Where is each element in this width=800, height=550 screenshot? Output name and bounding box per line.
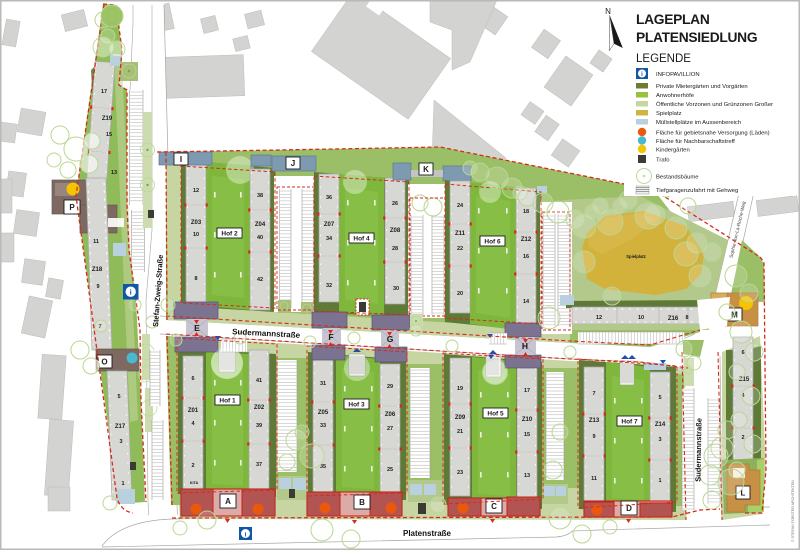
svg-text:41: 41: [256, 378, 262, 384]
svg-text:37: 37: [256, 462, 262, 468]
svg-text:24: 24: [457, 203, 464, 209]
svg-text:Z05: Z05: [318, 410, 329, 416]
svg-text:Hof 2: Hof 2: [221, 230, 238, 237]
svg-text:12: 12: [596, 315, 602, 321]
svg-text:Z13: Z13: [589, 418, 600, 424]
svg-text:15: 15: [106, 132, 112, 138]
svg-text:Hof 3: Hof 3: [348, 401, 365, 408]
svg-text:33: 33: [320, 423, 326, 429]
svg-text:3: 3: [658, 437, 661, 443]
svg-text:Z04: Z04: [255, 222, 266, 228]
svg-text:26: 26: [392, 201, 398, 207]
svg-text:2: 2: [741, 435, 744, 441]
svg-text:Z02: Z02: [254, 405, 265, 411]
svg-text:7: 7: [592, 391, 595, 397]
svg-text:16: 16: [523, 254, 529, 260]
svg-text:KITA: KITA: [190, 481, 199, 485]
svg-text:Z17: Z17: [115, 424, 126, 430]
svg-text:29: 29: [387, 384, 393, 390]
svg-text:8: 8: [194, 276, 197, 282]
svg-text:9: 9: [96, 284, 99, 290]
svg-text:Platenstraße: Platenstraße: [403, 529, 452, 538]
svg-text:Kindergärten: Kindergärten: [656, 147, 690, 153]
svg-text:Hof 6: Hof 6: [484, 238, 501, 245]
svg-text:11: 11: [591, 476, 597, 482]
svg-text:34: 34: [326, 236, 333, 242]
svg-text:B: B: [359, 498, 365, 507]
svg-text:C: C: [491, 502, 497, 511]
svg-text:1: 1: [121, 481, 124, 487]
svg-text:15: 15: [524, 432, 530, 438]
svg-text:12: 12: [193, 188, 199, 194]
svg-text:F: F: [328, 332, 333, 342]
svg-text:28: 28: [392, 246, 398, 252]
svg-text:2: 2: [191, 463, 194, 469]
svg-text:Öffentliche Vorzonen und Grünz: Öffentliche Vorzonen und Grünzonen Große…: [656, 101, 773, 108]
svg-text:i: i: [130, 288, 132, 297]
svg-text:Z14: Z14: [655, 422, 666, 428]
svg-text:Private Mietergärten und Vorgä: Private Mietergärten und Vorgärten: [656, 84, 748, 90]
svg-text:27: 27: [387, 426, 393, 432]
svg-text:Z11: Z11: [455, 231, 466, 237]
svg-text:1: 1: [658, 478, 661, 484]
svg-text:Fläche für Nachbarschaftstreff: Fläche für Nachbarschaftstreff: [656, 139, 735, 145]
svg-text:I: I: [180, 155, 182, 164]
svg-text:LAGEPLAN: LAGEPLAN: [636, 12, 710, 27]
svg-text:40: 40: [257, 235, 263, 241]
svg-text:19: 19: [457, 386, 463, 392]
svg-text:10: 10: [638, 315, 644, 321]
svg-text:Anwohnerhöfe: Anwohnerhöfe: [656, 93, 695, 99]
svg-text:P: P: [69, 203, 75, 212]
svg-text:H: H: [522, 341, 528, 351]
svg-text:14: 14: [523, 299, 530, 305]
svg-text:13: 13: [524, 473, 530, 479]
svg-text:3: 3: [119, 439, 122, 445]
svg-text:J: J: [291, 159, 295, 168]
svg-text:20: 20: [457, 291, 463, 297]
svg-text:Hof 5: Hof 5: [487, 410, 504, 417]
svg-text:Hof 1: Hof 1: [219, 397, 236, 404]
svg-text:i: i: [245, 531, 247, 538]
svg-text:Z16: Z16: [668, 316, 679, 322]
svg-text:Hof 4: Hof 4: [353, 235, 370, 242]
svg-text:17: 17: [101, 89, 107, 95]
svg-text:25: 25: [387, 467, 393, 473]
svg-text:11: 11: [93, 239, 99, 245]
svg-text:O: O: [101, 357, 107, 366]
svg-text:Z12: Z12: [521, 237, 532, 243]
svg-text:35: 35: [320, 464, 326, 470]
svg-text:30: 30: [393, 286, 399, 292]
svg-text:Sudermannstraße: Sudermannstraße: [693, 418, 703, 482]
svg-text:31: 31: [320, 381, 326, 387]
svg-text:Z01: Z01: [188, 408, 199, 414]
svg-text:6: 6: [741, 350, 744, 356]
svg-text:INFOPAVILLION: INFOPAVILLION: [656, 72, 700, 78]
svg-text:22: 22: [457, 246, 463, 252]
svg-text:6: 6: [191, 376, 194, 382]
svg-text:10: 10: [193, 232, 199, 238]
svg-text:17: 17: [524, 388, 530, 394]
svg-text:8: 8: [685, 315, 688, 321]
svg-text:PLATENSIEDLUNG: PLATENSIEDLUNG: [636, 30, 757, 45]
svg-text:38: 38: [257, 193, 263, 199]
svg-text:N: N: [605, 7, 611, 16]
svg-text:Hof 7: Hof 7: [621, 418, 638, 425]
svg-text:Trafo: Trafo: [656, 158, 670, 164]
svg-text:13: 13: [111, 170, 117, 176]
svg-text:K: K: [423, 165, 429, 174]
svg-text:18: 18: [523, 209, 529, 215]
svg-text:9: 9: [592, 434, 595, 440]
svg-text:Bestandsbäume: Bestandsbäume: [656, 175, 699, 181]
svg-text:Z08: Z08: [390, 228, 401, 234]
svg-text:Z09: Z09: [455, 415, 466, 421]
svg-text:Z07: Z07: [324, 222, 335, 228]
svg-text:G: G: [387, 334, 394, 344]
svg-text:36: 36: [326, 195, 332, 201]
svg-text:32: 32: [326, 283, 332, 289]
svg-text:Z03: Z03: [191, 220, 202, 226]
svg-text:Z18: Z18: [92, 267, 103, 273]
svg-text:Spielplatz: Spielplatz: [656, 111, 682, 117]
svg-text:Z10: Z10: [522, 417, 533, 423]
svg-text:© STEFAN FORSTER ARCHITEKTEN: © STEFAN FORSTER ARCHITEKTEN: [791, 480, 795, 542]
svg-text:Fläche für gebietsnahe Versorg: Fläche für gebietsnahe Versorgung (Läden…: [656, 130, 770, 136]
svg-text:LEGENDE: LEGENDE: [636, 53, 691, 65]
svg-text:5: 5: [117, 394, 120, 400]
svg-text:E: E: [194, 323, 200, 333]
svg-text:42: 42: [257, 277, 263, 283]
svg-text:Z19: Z19: [102, 116, 113, 122]
svg-text:21: 21: [457, 429, 463, 435]
svg-text:Müllstellplätze im Aussenberei: Müllstellplätze im Aussenbereich: [656, 120, 741, 126]
svg-text:23: 23: [457, 470, 463, 476]
svg-text:Spielplatz: Spielplatz: [626, 254, 646, 259]
svg-text:Z06: Z06: [385, 412, 396, 418]
svg-text:5: 5: [658, 395, 661, 401]
svg-text:39: 39: [256, 423, 262, 429]
svg-text:Tiefgaragenzufahrt mit Gehweg: Tiefgaragenzufahrt mit Gehweg: [656, 188, 738, 194]
svg-text:A: A: [225, 497, 231, 506]
